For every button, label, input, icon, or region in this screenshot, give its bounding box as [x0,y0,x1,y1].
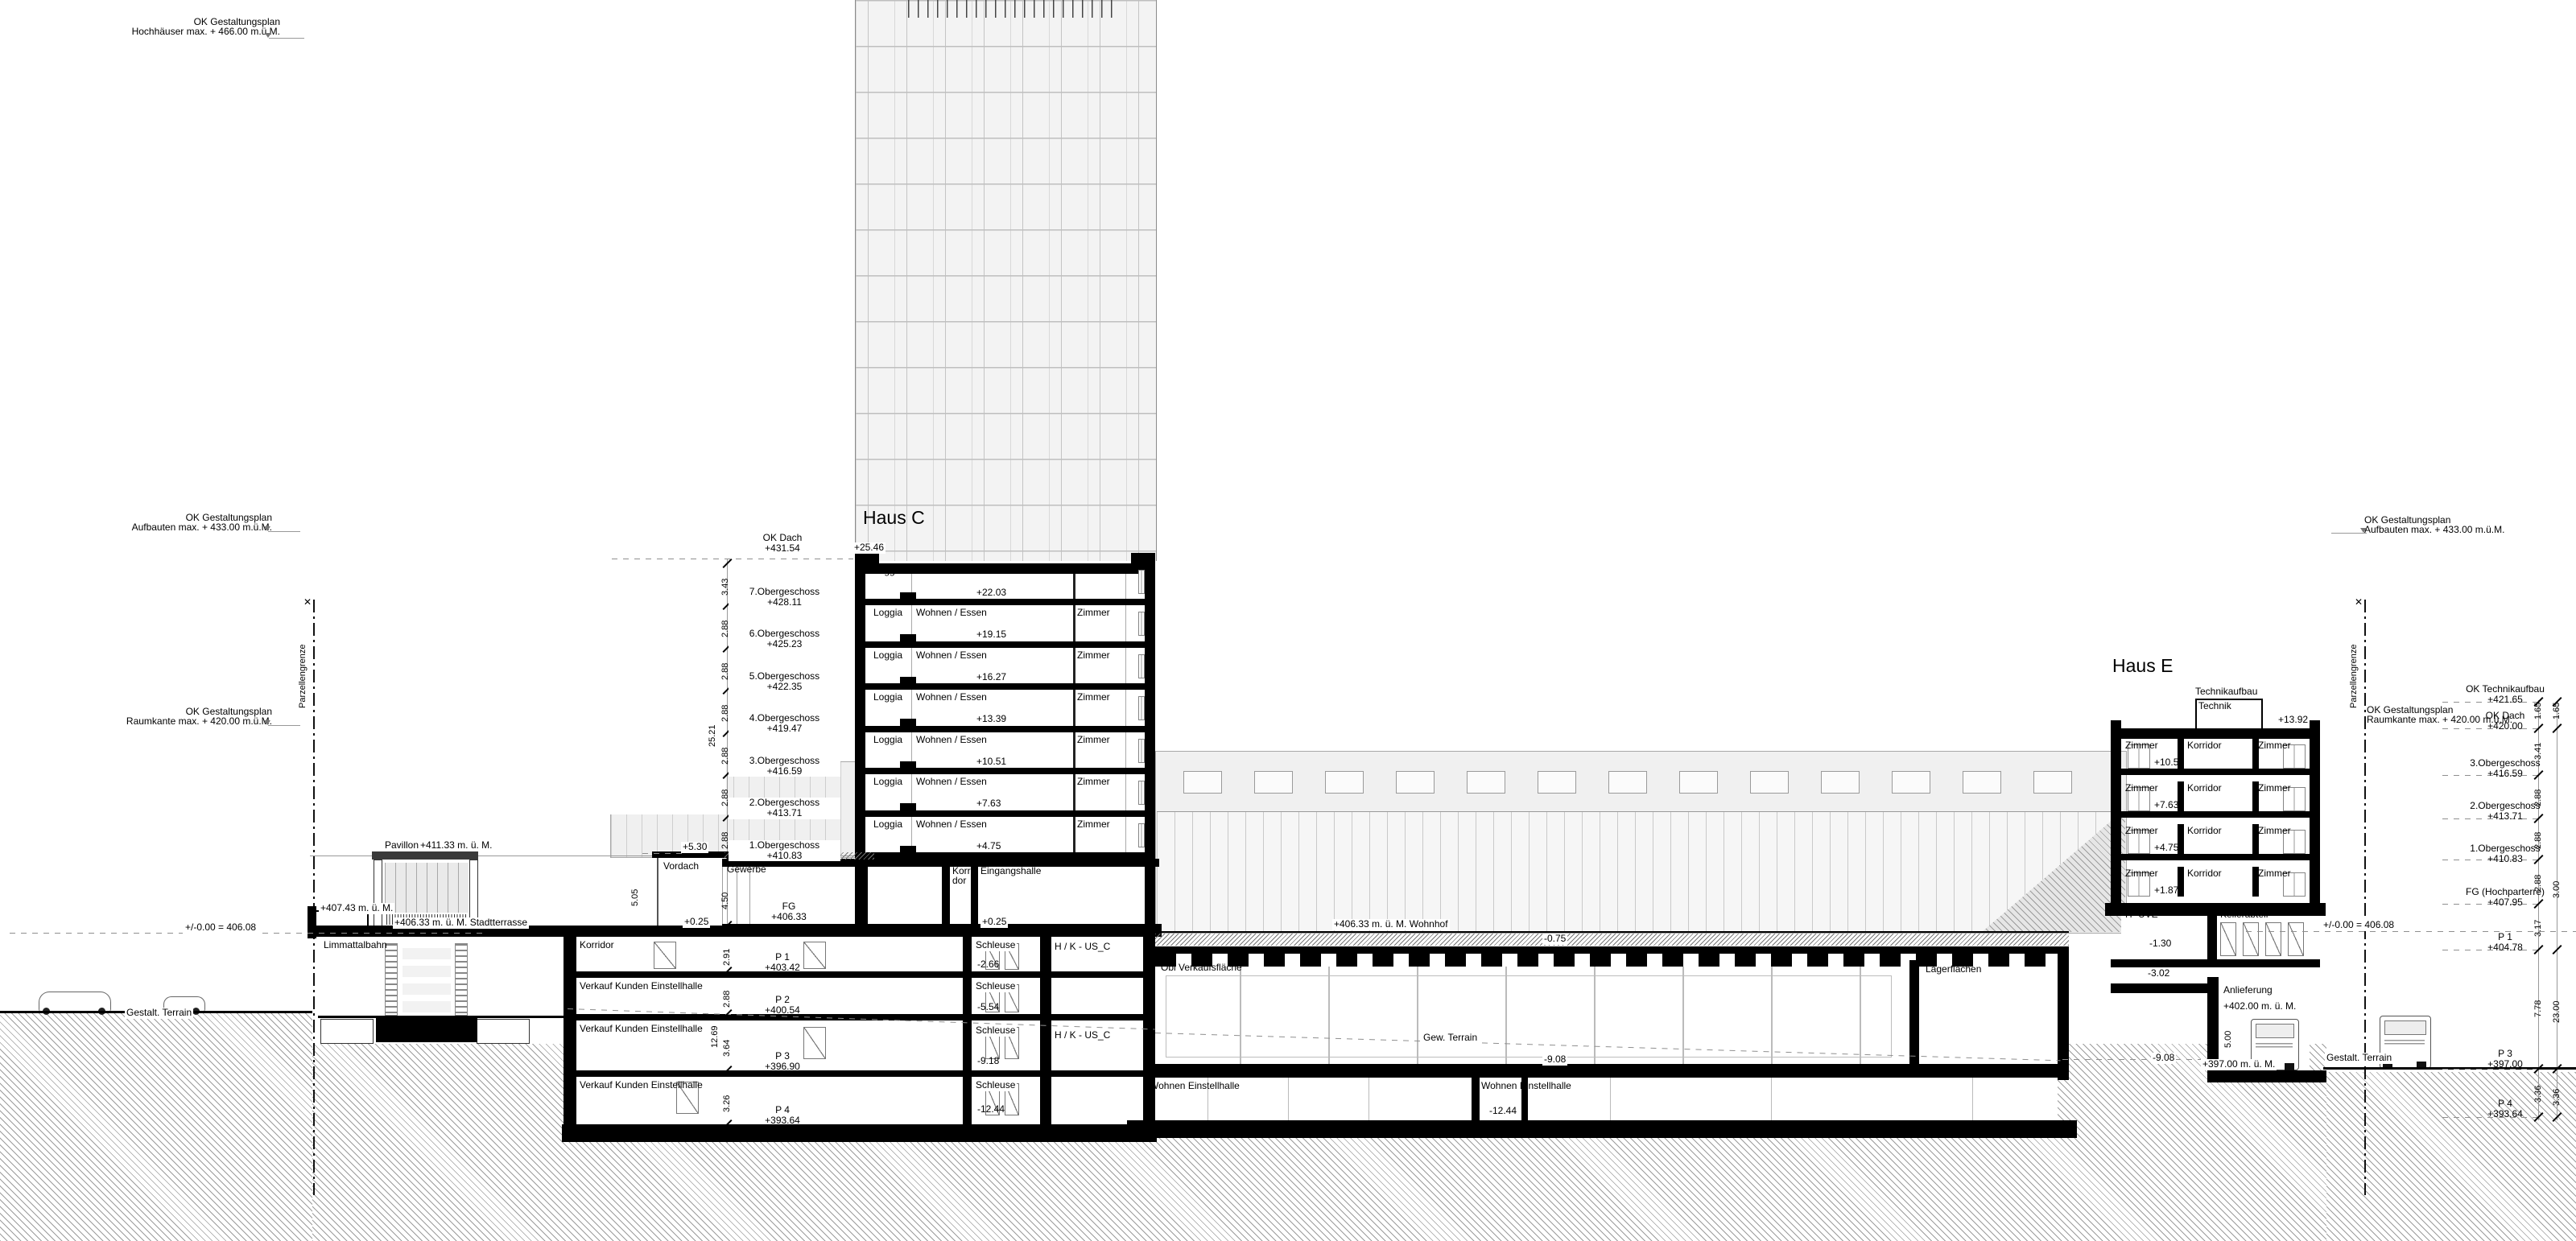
foundation-block [320,1019,374,1044]
parapet [855,553,879,563]
garage-column [1368,1078,1369,1120]
partition [1125,774,1126,810]
limmattalbahn-label: Limmattalbahn [324,940,387,951]
right-dim-inner: 2.88 [2533,875,2543,892]
basement-dim: 3.64 [722,1040,732,1057]
right-dim-inner: 3.36 [2533,1086,2543,1103]
korridor-eg-label-2: dor [952,876,966,887]
hausE-floor-rel: +10.51 [2154,757,2184,769]
vordach-rel: +5.30 [681,842,708,853]
floor-rel-value: +16.27 [976,672,1006,683]
loggia-step [900,719,916,726]
hall-column [1240,967,1241,1064]
tower-floor-slab [865,641,1145,648]
window-icon [1138,612,1145,636]
right-col-value: +416.59 [2445,769,2566,780]
x-marker-icon: ✕ [2355,597,2363,608]
room-label-wohnen-essen: Wohnen / Essen [916,650,987,662]
limit-aufbauten-right-line2: Aufbauten max. + 433.00 m.ü.M. [2364,525,2504,536]
garage-column [1288,1078,1289,1120]
schleuse-wall [1040,937,1051,1124]
floor-rel-value: +22.03 [976,588,1006,599]
wohnen-eh-rel: -12.44 [1489,1106,1517,1117]
room-label-wohnen-essen: Wohnen / Essen [916,566,987,577]
tower-floor-slab [865,852,1145,859]
anlieferung-upper [2219,967,2310,983]
basement-bottom-slab [562,1124,1157,1142]
room-label-wohnen-essen: Wohnen / Essen [916,608,987,619]
right-dim-outer: 23.00 [2552,1000,2562,1023]
stadtterrasse-label: +406.33 m. ü. M. Stadtterrasse [393,917,529,929]
basement-slab [568,971,1155,978]
right-col-value: +407.95 [2445,897,2566,909]
window-icon [1138,739,1145,763]
right-dim-inner: 3.41 [2533,743,2543,760]
keller-door-icon [2243,922,2259,956]
right-dim-outer: 1.65 [2552,703,2562,719]
hausE-room-korridor: Korridor [2187,826,2222,837]
room-wall [1073,648,1075,683]
hausE-room-zimmer: Zimmer [2258,783,2291,794]
pavilion-column [374,860,382,929]
pavillon-abs: +411.33 m. ü. M. [420,840,493,851]
right-col-value: +420.00 [2445,721,2566,732]
tower-wall-right [1145,574,1155,859]
floor-abs-value: +410.83 [729,851,840,862]
tower-wall-left [855,574,865,859]
room-wall [1073,774,1075,810]
keller-door-icon [2288,922,2304,956]
datum-left: +/-0.00 = 406.08 [184,922,258,934]
parapet [2310,720,2320,728]
partition [1125,732,1126,768]
partition [1125,690,1126,725]
tower-roof-comb [908,0,1121,18]
level-marker-icon [264,720,270,725]
right-dim-inner: 7.78 [2533,1000,2543,1017]
room-label-zimmer: Zimmer [1077,819,1110,831]
p-level-abs: +393.64 [750,1115,815,1127]
basement-wall-right [1143,937,1155,1124]
level-marker-icon [265,33,271,38]
garage-bottom-slab [1127,1120,2077,1138]
schleuse-wall [963,937,972,1124]
loggia-step [900,634,916,641]
tower-elevation [855,0,1157,561]
datum-dash-left2 [251,933,485,934]
canopy-post [657,858,658,926]
wohnhof-label: +406.33 m. ü. M. Wohnhof [1332,919,1450,930]
window-icon [1138,823,1145,847]
terrain-right-label: Gestalt. Terrain [2325,1053,2393,1064]
tower-floor-slab [865,768,1145,774]
basement-hall-label: Verkauf Kunden Einstellhalle [580,1024,703,1035]
truck-windshield [2256,1024,2294,1038]
basement-dim: 2.91 [722,948,732,965]
room-label-loggia: Loggia [873,608,902,619]
pavilion-glazing [385,863,469,913]
basement-wall-left [563,937,576,1124]
rel-908-dashline [2062,1059,2207,1060]
partition [1125,605,1126,641]
huve-rel: -1.30 [2149,938,2171,950]
pavillon-label: Pavillon [385,840,419,851]
parapet [2111,720,2121,728]
eg-rel-right: +0.25 [980,917,1008,928]
pavilion-roof [372,851,478,860]
anlieferung-floor [2207,1070,2326,1082]
hk-label-1: H / K - US_C [1055,942,1110,953]
fg-slab [722,924,1162,937]
room-label-wohnen-essen: Wohnen / Essen [916,735,987,746]
basement-dim: 3.26 [722,1095,732,1111]
hausE-room-zimmer: Zimmer [2125,826,2158,837]
room-label-loggia: Loggia [873,692,902,703]
floor-abs-value: +425.23 [729,639,840,650]
schleuse-rel: -9.18 [977,1056,999,1067]
station-elevator [402,942,451,1014]
floor-rel-value: +4.75 [976,841,1001,852]
hausE-room-zimmer: Zimmer [2125,740,2158,752]
elevation-window-icon [1183,771,1222,794]
hausE-wall-right [2310,739,2320,903]
truck-grille [2256,1043,2293,1049]
limit-aufbauten-left-line2: Aufbauten max. + 433.00 m.ü.M. [111,522,272,534]
schleuse-label: Schleuse [974,940,1017,951]
loggia-step [900,846,916,853]
schleuse-label: Schleuse [974,1080,1017,1091]
haus-e-title: Haus E [2112,655,2173,676]
hausE-floor-slab [2121,854,2310,860]
right-col-value: +404.78 [2445,942,2566,954]
window-icon [1138,654,1145,678]
garage-wall [1472,1078,1480,1120]
room-label-loggia: Loggia [873,777,902,788]
tower-floor-slab [865,683,1145,690]
schleuse-label: Schleuse [974,1025,1017,1037]
eg-wall-right [1145,859,1155,926]
room-label-zimmer: Zimmer [1077,692,1110,703]
hall-floor-slab [1143,1064,2069,1078]
dim-total-upper: 25.21 [708,724,717,747]
floor-dim: 2.88 [720,662,730,679]
elevation-window-icon [1608,771,1647,794]
elevation-window-icon [1963,771,2001,794]
floor-abs-value: +416.59 [729,766,840,777]
floor-rel-value: +10.51 [976,757,1006,768]
elevation-window-icon [1679,771,1718,794]
garage-column [1972,1078,1973,1120]
floor-rel-value: +13.39 [976,714,1006,725]
level-marker-icon [2360,528,2367,533]
elevation-window-icon [2033,771,2072,794]
wohnhof-deck-line [1155,931,2069,933]
elevation-window-icon [1254,771,1293,794]
level-marker-icon [264,526,270,531]
tower-floor-slab [865,726,1145,732]
hausE-floor-rel: +4.75 [2154,843,2178,854]
hall-column [1328,967,1330,1064]
hausE-room-zimmer: Zimmer [2258,826,2291,837]
right-dim-inner: 1.65 [2533,703,2543,719]
wohnen-eh-a: Wohnen Einstellhalle [1150,1081,1240,1092]
basement-hall-label: Korridor [580,940,614,951]
foundation-block [477,1019,530,1044]
hall-column [1771,967,1773,1064]
architectural-section-drawing: ✕ ✕ Parzellengrenze Parzellengrenze OK G… [0,0,2576,1241]
right-col-value: +393.64 [2445,1109,2566,1120]
room-label-wohnen-essen: Wohnen / Essen [916,692,987,703]
dim-vordach: 5.05 [630,889,640,906]
room-wall [1073,817,1075,852]
p-level-abs: +396.90 [750,1062,815,1073]
x-marker-icon: ✕ [303,597,312,608]
window-icon [1138,781,1145,805]
floor-dim: 3.43 [720,579,730,596]
verkaufsflaeche-label: Obi Verkaufsfläche [1161,963,1242,974]
huve-label: H -UVE [2125,909,2158,921]
hausE-wall-left [2111,739,2121,903]
escalator [385,943,398,1016]
right-dim-outer: 3.00 [2552,881,2562,898]
gewerbe-label: Gewerbe [727,864,766,876]
parzellengrenze-label: Parzellengrenze [298,618,308,708]
datum-right: +/-0.00 = 406.08 [2322,920,2396,931]
floor-abs-value: +422.35 [729,682,840,693]
anlieferung-label: Anlieferung [2222,985,2274,996]
hausE-floor-rel: +7.63 [2154,800,2178,811]
partition [1125,648,1126,683]
fg-value: +406.33 [757,912,821,923]
hausE-roof-slab [2111,728,2320,739]
floor-dim: 2.88 [720,831,730,848]
anlieferung-abs: +402.00 m. ü. M. [2222,1001,2297,1012]
right-dim-inner: 2.88 [2533,832,2543,849]
room-label-loggia: Loggia [873,650,902,662]
terrain-left-label: Gestalt. Terrain [125,1008,193,1019]
roof-rel-value: +25.46 [834,542,885,554]
loggia-step [900,677,916,684]
hausE-room-zimmer: Zimmer [2258,868,2291,880]
room-wall [1073,732,1075,768]
right-col-value: +421.65 [2445,695,2566,706]
basement-slab [568,1070,1155,1077]
basement-hall-label: Verkauf Kunden Einstellhalle [580,1080,703,1091]
room-wall [1073,690,1075,725]
hausE-room-zimmer: Zimmer [2125,783,2158,794]
tower-floor-slab [865,810,1145,817]
room-label-zimmer: Zimmer [1077,735,1110,746]
loggia-step [900,761,916,769]
elevation-window-icon [1892,771,1930,794]
technikaufbau-label: Technikaufbau [2195,686,2257,698]
hall-column [1594,967,1596,1064]
schleuse-label: Schleuse [974,981,1017,992]
hausE-room-korridor: Korridor [2187,868,2222,880]
p-level-abs: +403.42 [750,963,815,974]
hausE-room-korridor: Korridor [2187,740,2222,752]
ok-dach-value: +431.54 [729,543,836,555]
anlieferung-floor: +397.00 m. ü. M. [2201,1059,2277,1070]
right-dim-inner: 2.88 [2533,790,2543,806]
loggia-step [900,592,916,600]
rel-908-a: -9.08 [1542,1054,1567,1066]
floor-rel-value: +19.15 [976,629,1006,641]
hall-column [1417,967,1418,1064]
room-label-zimmer: Zimmer [1077,608,1110,619]
keller-door-icon [2220,922,2236,956]
datum-dash-left [10,933,183,934]
parzellengrenze-label: Parzellengrenze [2349,618,2359,708]
tower-floor-slab [865,599,1145,605]
hausE-roof-rel: +13.92 [2277,715,2310,726]
hausE-room-zimmer: Zimmer [2125,868,2158,880]
room-label-wohnen-essen: Wohnen / Essen [916,819,987,831]
door-icon [654,942,676,969]
parzellengrenze-line-right [2364,600,2366,1195]
window-icon [1138,696,1145,720]
keller-door-icon [2265,922,2281,956]
gew-terrain-label: Gew. Terrain [1422,1033,1479,1044]
hausE-room-korridor: Korridor [2187,783,2222,794]
hausE-room-zimmer: Zimmer [2258,740,2291,752]
floor-abs-value: +428.11 [729,597,840,608]
wohnen-eh-b: Wohnen Einstellhalle [1481,1081,1571,1092]
schleuse-rel: -2.66 [977,959,999,971]
partition [1125,817,1126,852]
floor-dim: 2.88 [720,790,730,806]
p-level-abs: +400.54 [750,1005,815,1016]
elevation-window-icon [1821,771,1860,794]
basement-hall-label: Verkauf Kunden Einstellhalle [580,981,703,992]
ug2-slab [2111,983,2219,993]
keller-label: Kellerabteil [2220,909,2268,921]
ok-dach-dashline [612,559,853,559]
dim-total-lower: 12.69 [710,1025,720,1048]
right-col-value: +397.00 [2445,1059,2566,1070]
schleuse-rel: -5.54 [977,1002,999,1013]
hausE-floor-rel: +1.87 [2154,885,2178,897]
right-col-value: +410.83 [2445,854,2566,865]
right-dim-inner: 3.17 [2533,920,2543,937]
vordach-dashline [642,853,687,854]
anlieferung-dim: 5.00 [2223,1031,2233,1048]
floor-abs-value: +419.47 [729,724,840,735]
hall-inner-outline [1166,975,1892,1058]
room-label-zimmer: Zimmer [1077,650,1110,662]
long-building-glazing [1157,811,2124,931]
rel-908-b: -9.08 [2151,1053,2176,1064]
abs-40743: +407.43 m. ü. M. [319,903,394,914]
garage-column [1610,1078,1611,1120]
eg-pier [855,867,868,926]
room-label-zimmer: Zimmer [1077,566,1110,577]
hall-column [1860,967,1861,1064]
schleuse-rel: -12.44 [977,1104,1005,1115]
garage-column [1771,1078,1772,1120]
elevation-window-icon [1467,771,1505,794]
loggia-step [900,803,916,810]
parzellengrenze-line-left [313,600,315,1195]
lager-label: Lagerflächen [1926,964,1981,975]
technik-label: Technik [2198,701,2231,712]
floor-dim: 2.88 [720,705,730,722]
eg-rel-left: +0.25 [683,917,710,928]
elevation-window-icon [1396,771,1435,794]
truck-grille [2384,1040,2425,1046]
hausE-floor-slab [2121,769,2310,775]
hausE-ug-slab [2111,959,2320,967]
wheel-icon [2285,1063,2294,1070]
right-col-value: +413.71 [2445,811,2566,823]
deck-rel: -0.75 [1542,934,1567,945]
elevation-window-icon [1538,771,1576,794]
limit-hochhaus-line2: Hochhäuser max. + 466.00 m.ü.M. [119,27,280,38]
truck-windshield [2384,1020,2426,1035]
hall-column [1505,967,1507,1064]
eg-pier [942,867,950,926]
room-label-wohnen-essen: Wohnen / Essen [916,777,987,788]
escalator [455,943,468,1016]
window-icon [1138,570,1145,594]
room-label-loggia: Loggia [873,819,902,831]
floor-abs-value: +413.71 [729,808,840,819]
hk-label-2: H / K - US_C [1055,1030,1110,1041]
hausE-floor-slab [2121,811,2310,818]
room-wall [1073,605,1075,641]
vordach-label: Vordach [662,861,700,872]
station-foundation [376,1018,477,1042]
parapet [1131,553,1155,563]
limit-raumkante-left-line2: Raumkante max. + 420.00 m.ü.M. [111,716,272,728]
basement-dim: 2.88 [722,990,732,1007]
right-dim-outer: 3.36 [2552,1089,2562,1106]
eingangshalle-label: Eingangshalle [980,866,1041,877]
floor-rel-value: +7.63 [976,798,1001,810]
floor-dim: 2.88 [720,747,730,764]
room-label-zimmer: Zimmer [1077,777,1110,788]
haus-c-title: Haus C [863,507,925,528]
earth-hatch-left [0,1013,312,1241]
room-label-loggia: Loggia [873,735,902,746]
elevation-window-icon [1325,771,1364,794]
dim-eg: 4.50 [720,893,730,909]
room-label-loggia: Loggia [873,566,902,577]
deck-slab [1155,946,2069,954]
elevation-window-icon [1750,771,1789,794]
floor-dim: 2.88 [720,620,730,637]
ug2-rel: -3.02 [2148,968,2169,979]
deck-topping [1155,934,2069,946]
